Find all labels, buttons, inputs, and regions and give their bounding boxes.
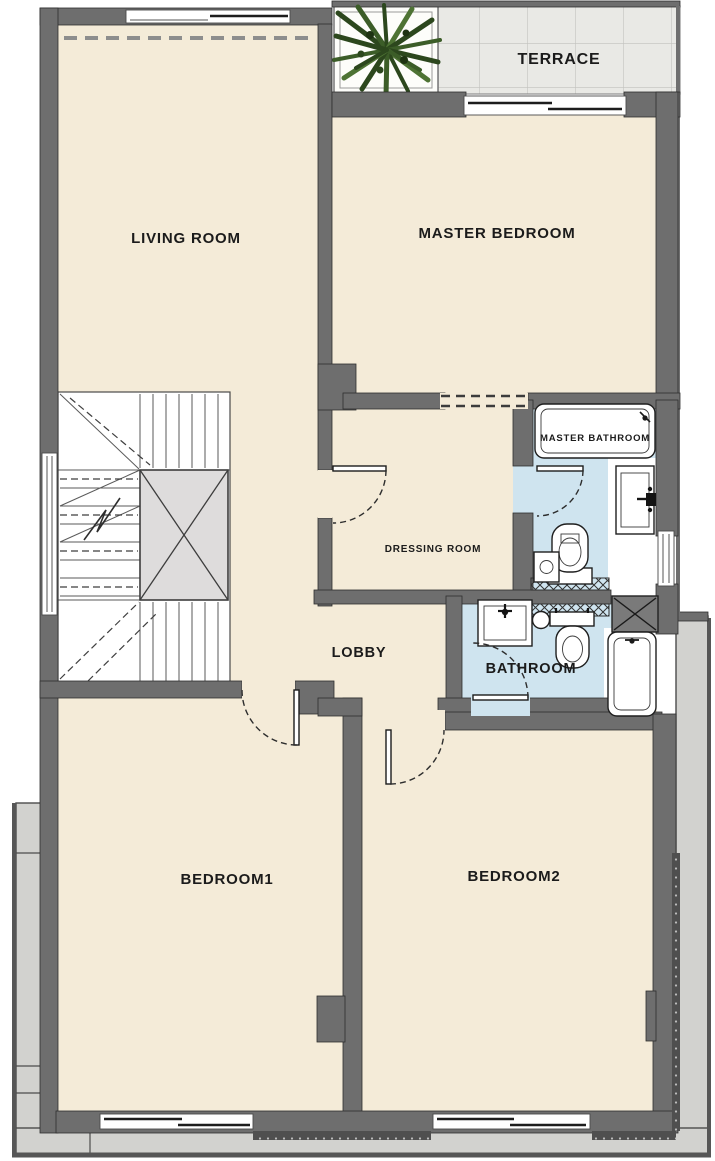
master-bathroom-doorway <box>513 466 533 513</box>
staircase <box>58 392 230 688</box>
toilet-icon <box>550 608 594 668</box>
bedroom1-floor <box>56 696 347 1115</box>
dressing-room-label: DRESSING ROOM <box>385 544 482 555</box>
dressing-room-floor <box>330 406 515 592</box>
bedroom1-window <box>100 1114 253 1129</box>
stair-side-window <box>42 453 57 615</box>
living-room-floor <box>56 24 318 392</box>
floor-drain-master-icon <box>534 552 559 582</box>
duct-shaft-icon <box>612 596 658 632</box>
floor-plan: TERRACE LIVING ROOM MASTER BEDROOM MASTE… <box>0 0 715 1161</box>
washbasin-master-icon <box>616 466 656 534</box>
left-balcony <box>16 803 42 1154</box>
bathtub-icon <box>608 632 656 716</box>
right-balcony <box>676 616 708 1154</box>
living-room-label: LIVING ROOM <box>131 230 241 247</box>
terrace-sliding-door <box>464 96 626 115</box>
terrace-floor <box>438 6 680 94</box>
bathtub-master-icon <box>535 404 655 458</box>
bathroom-label: BATHROOM <box>486 661 577 677</box>
bottom-railing-left <box>253 1131 431 1140</box>
bedroom1-door-opening <box>242 679 295 700</box>
bedroom2-door-opening <box>390 710 445 732</box>
bedroom2-label: BEDROOM2 <box>467 868 560 885</box>
bedroom2-floor <box>360 710 657 1115</box>
living-room-top-window <box>126 10 290 23</box>
bedroom1-label: BEDROOM1 <box>180 871 273 888</box>
washbasin-icon <box>478 600 532 646</box>
right-railing <box>672 853 680 1131</box>
master-bathroom-label: MASTER BATHROOM <box>540 433 650 444</box>
master-bedroom-opening <box>440 393 528 409</box>
bottom-railing-right <box>592 1131 676 1140</box>
master-bedroom-label: MASTER BEDROOM <box>418 225 575 242</box>
dressing-door-opening <box>318 470 332 518</box>
lobby-label: LOBBY <box>332 645 387 661</box>
floor-plan-canvas: TERRACE LIVING ROOM MASTER BEDROOM MASTE… <box>0 0 715 1161</box>
floor-drain-icon <box>533 612 550 629</box>
master-bathroom-window <box>658 531 674 586</box>
master-bedroom-floor <box>330 115 658 395</box>
stair-void <box>140 470 228 600</box>
bedroom2-window <box>433 1114 590 1129</box>
terrace-label: TERRACE <box>518 51 601 68</box>
